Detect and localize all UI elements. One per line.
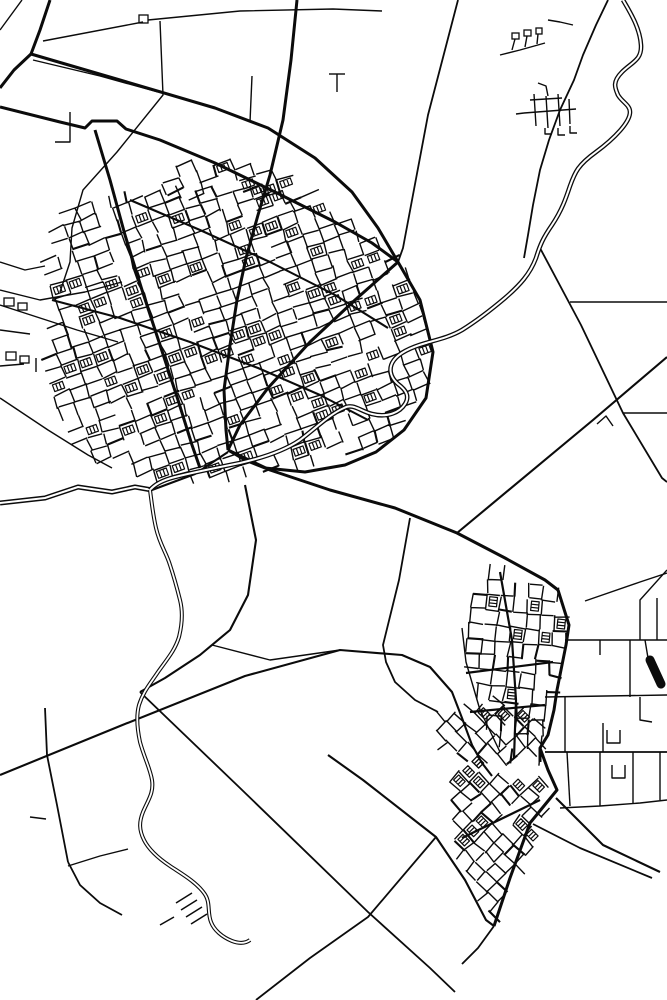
- connector-roads: [140, 485, 256, 692]
- field-roads-thin: [68, 849, 128, 866]
- field-roads-thin: [55, 112, 70, 142]
- connector-roads: [556, 798, 660, 872]
- rural-roads-medium: [256, 837, 436, 1000]
- embankment-ticks: [176, 893, 192, 903]
- district-mazes: [40, 159, 569, 923]
- field-roads-thin: [612, 765, 625, 778]
- field-roads-thin: [250, 76, 252, 122]
- field-roads-thin: [548, 20, 573, 25]
- rural-roads-medium: [462, 926, 494, 964]
- field-roads-thin: [597, 416, 613, 426]
- layer-rural-roads-medium: [45, 0, 667, 1000]
- rural-roads-medium: [68, 862, 122, 915]
- field-roads-thin: [525, 36, 527, 47]
- building-rect: [536, 28, 542, 34]
- waterways-and-casings: [0, 0, 641, 943]
- field-roads-thin: [516, 113, 524, 114]
- layer-arteries: [0, 0, 569, 926]
- rural-roads-medium: [45, 708, 68, 862]
- stream-south-water: [137, 490, 250, 943]
- streets-minor: [162, 159, 319, 204]
- field-roads-thin: [560, 800, 667, 808]
- streets-minor: [40, 186, 432, 484]
- field-roads-thin: [567, 752, 570, 806]
- field-roads-thin: [0, 398, 112, 468]
- field-roads-thin: [607, 730, 620, 743]
- building-rect: [6, 352, 16, 360]
- field-roads-thin: [558, 128, 565, 135]
- field-roads-thin: [524, 109, 576, 113]
- arteries: [494, 748, 557, 926]
- field-roads-thin: [640, 697, 652, 722]
- row-house-blocks: [454, 757, 545, 846]
- field-roads-thin: [0, 330, 30, 334]
- blobs: [650, 660, 661, 684]
- map-canvas: [0, 0, 667, 1000]
- field-roads-thin: [148, 9, 382, 20]
- field-roads-thin: [0, 0, 22, 30]
- embankment-ticks: [160, 917, 174, 925]
- building-rect: [4, 298, 14, 306]
- field-roads-thin: [645, 640, 648, 658]
- depot-blob: [650, 660, 661, 684]
- embankment-ticks: [181, 900, 197, 910]
- district-upper-town-main: [40, 184, 432, 484]
- field-roads-thin: [570, 126, 577, 133]
- field-roads-thin: [512, 39, 515, 50]
- field-roads-thin: [546, 96, 548, 128]
- map-stage: [0, 0, 667, 1000]
- stream-south-banks: [137, 490, 250, 943]
- district-upper-town-north: [162, 159, 319, 204]
- arteries: [228, 450, 558, 590]
- field-roads-thin: [585, 573, 667, 601]
- field-roads-thin: [60, 21, 163, 292]
- connector-roads: [0, 650, 492, 776]
- arteries: [31, 0, 50, 54]
- district-lower-town-diamond: [449, 757, 549, 923]
- field-roads-thin: [538, 83, 548, 96]
- field-roads-thin: [30, 817, 46, 819]
- field-roads-thin: [0, 364, 24, 366]
- field-roads-thin: [0, 262, 45, 270]
- building-rect: [524, 30, 531, 36]
- building-rect: [18, 303, 27, 310]
- rural-roads-medium: [140, 692, 455, 992]
- embankment-ticks: [191, 914, 207, 924]
- field-roads-thin: [212, 645, 340, 660]
- rural-roads-medium: [524, 0, 608, 258]
- arteries: [224, 0, 297, 450]
- arteries: [0, 54, 31, 88]
- field-roads-thin: [43, 22, 143, 41]
- field-roads-thin: [545, 695, 667, 697]
- layer-connector-roads: [0, 200, 667, 926]
- rural-roads-medium: [398, 0, 458, 262]
- field-roads-thin: [537, 34, 538, 44]
- rural-roads-medium: [383, 518, 438, 712]
- connector-roads: [457, 357, 667, 533]
- hatch-marks: [160, 893, 207, 925]
- field-roads-thin: [534, 94, 536, 126]
- building-rect: [20, 356, 29, 363]
- field-roads-thin: [500, 43, 545, 55]
- embankment-ticks: [186, 907, 202, 917]
- field-roads-thin: [569, 99, 570, 124]
- building-rect: [512, 33, 519, 39]
- rural-roads-medium: [533, 824, 652, 878]
- arteries: [0, 107, 398, 262]
- layer-field-roads-thin: [0, 0, 667, 866]
